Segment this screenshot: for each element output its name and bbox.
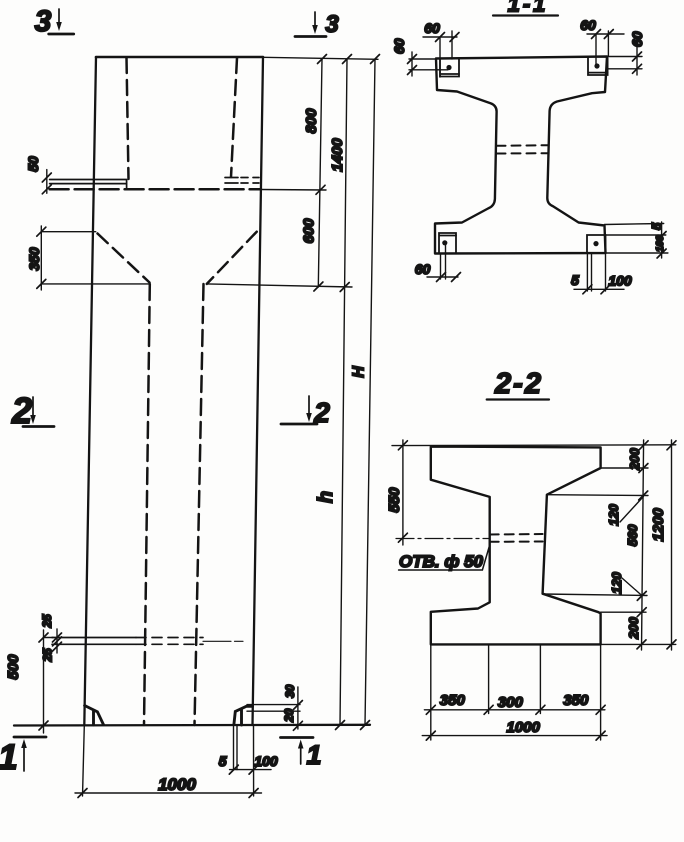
svg-text:60: 60 [391,38,407,54]
svg-text:1000: 1000 [507,719,541,736]
svg-text:200: 200 [627,447,642,470]
svg-text:560: 560 [625,524,640,546]
svg-text:120: 120 [609,571,624,593]
svg-text:1400: 1400 [329,138,346,172]
svg-text:300: 300 [498,694,524,711]
svg-text:120: 120 [606,503,621,525]
svg-text:60: 60 [415,261,431,277]
svg-text:2-2: 2-2 [494,368,543,400]
svg-text:1000: 1000 [158,775,196,794]
svg-text:25: 25 [41,648,55,663]
svg-text:60: 60 [580,17,596,33]
svg-text:20: 20 [282,708,296,723]
svg-text:2: 2 [11,390,32,431]
svg-text:30: 30 [283,684,297,698]
svg-text:350: 350 [563,692,589,709]
svg-text:200: 200 [626,616,641,639]
svg-text:550: 550 [386,487,403,513]
svg-text:2: 2 [313,397,330,428]
svg-text:25: 25 [40,614,54,629]
svg-text:60: 60 [629,31,645,47]
svg-text:5: 5 [649,222,664,230]
svg-text:h: h [315,491,337,503]
svg-text:60: 60 [424,20,440,36]
svg-text:1200: 1200 [650,507,667,541]
svg-text:1-1: 1-1 [508,0,549,17]
svg-text:3: 3 [35,5,52,38]
svg-text:1: 1 [306,740,321,770]
svg-text:5: 5 [219,753,227,769]
svg-text:350: 350 [26,247,42,271]
svg-text:350: 350 [440,692,466,709]
svg-text:ОТВ. ф 50: ОТВ. ф 50 [399,552,484,571]
svg-text:H: H [351,366,368,378]
svg-text:50: 50 [25,156,41,172]
svg-text:100: 100 [254,753,278,769]
svg-text:100: 100 [655,235,666,252]
svg-text:5: 5 [571,272,579,288]
svg-text:500: 500 [5,654,22,680]
svg-text:600: 600 [301,218,318,244]
svg-text:100: 100 [608,273,632,289]
svg-text:800: 800 [303,108,320,134]
svg-text:1: 1 [0,738,18,777]
svg-text:3: 3 [325,11,339,38]
